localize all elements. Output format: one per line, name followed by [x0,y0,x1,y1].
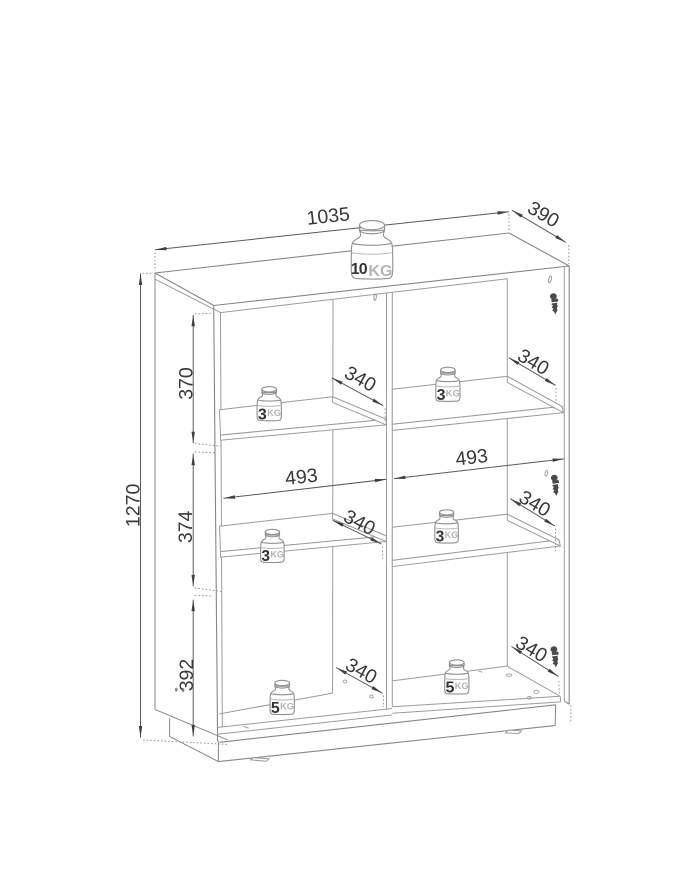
svg-text:493: 493 [454,445,489,471]
svg-text:3: 3 [261,548,270,565]
svg-text:KG: KG [267,408,281,418]
svg-text:KG: KG [445,530,459,540]
svg-text:3: 3 [436,529,445,546]
svg-text:1035: 1035 [305,203,351,230]
svg-text:KG: KG [368,263,392,280]
svg-text:370: 370 [175,367,197,400]
svg-text:KG: KG [446,389,460,399]
svg-text:493: 493 [284,464,319,490]
svg-text:392: 392 [176,659,198,692]
svg-text:5: 5 [445,680,454,697]
svg-text:5: 5 [271,700,280,717]
svg-text:1270: 1270 [122,484,144,528]
svg-text:10: 10 [351,261,368,278]
svg-text:374: 374 [175,510,197,543]
svg-text:KG: KG [455,681,469,691]
svg-text:3: 3 [437,387,446,404]
svg-text:3: 3 [258,406,267,423]
svg-text:KG: KG [280,702,294,712]
svg-text:KG: KG [270,550,284,560]
